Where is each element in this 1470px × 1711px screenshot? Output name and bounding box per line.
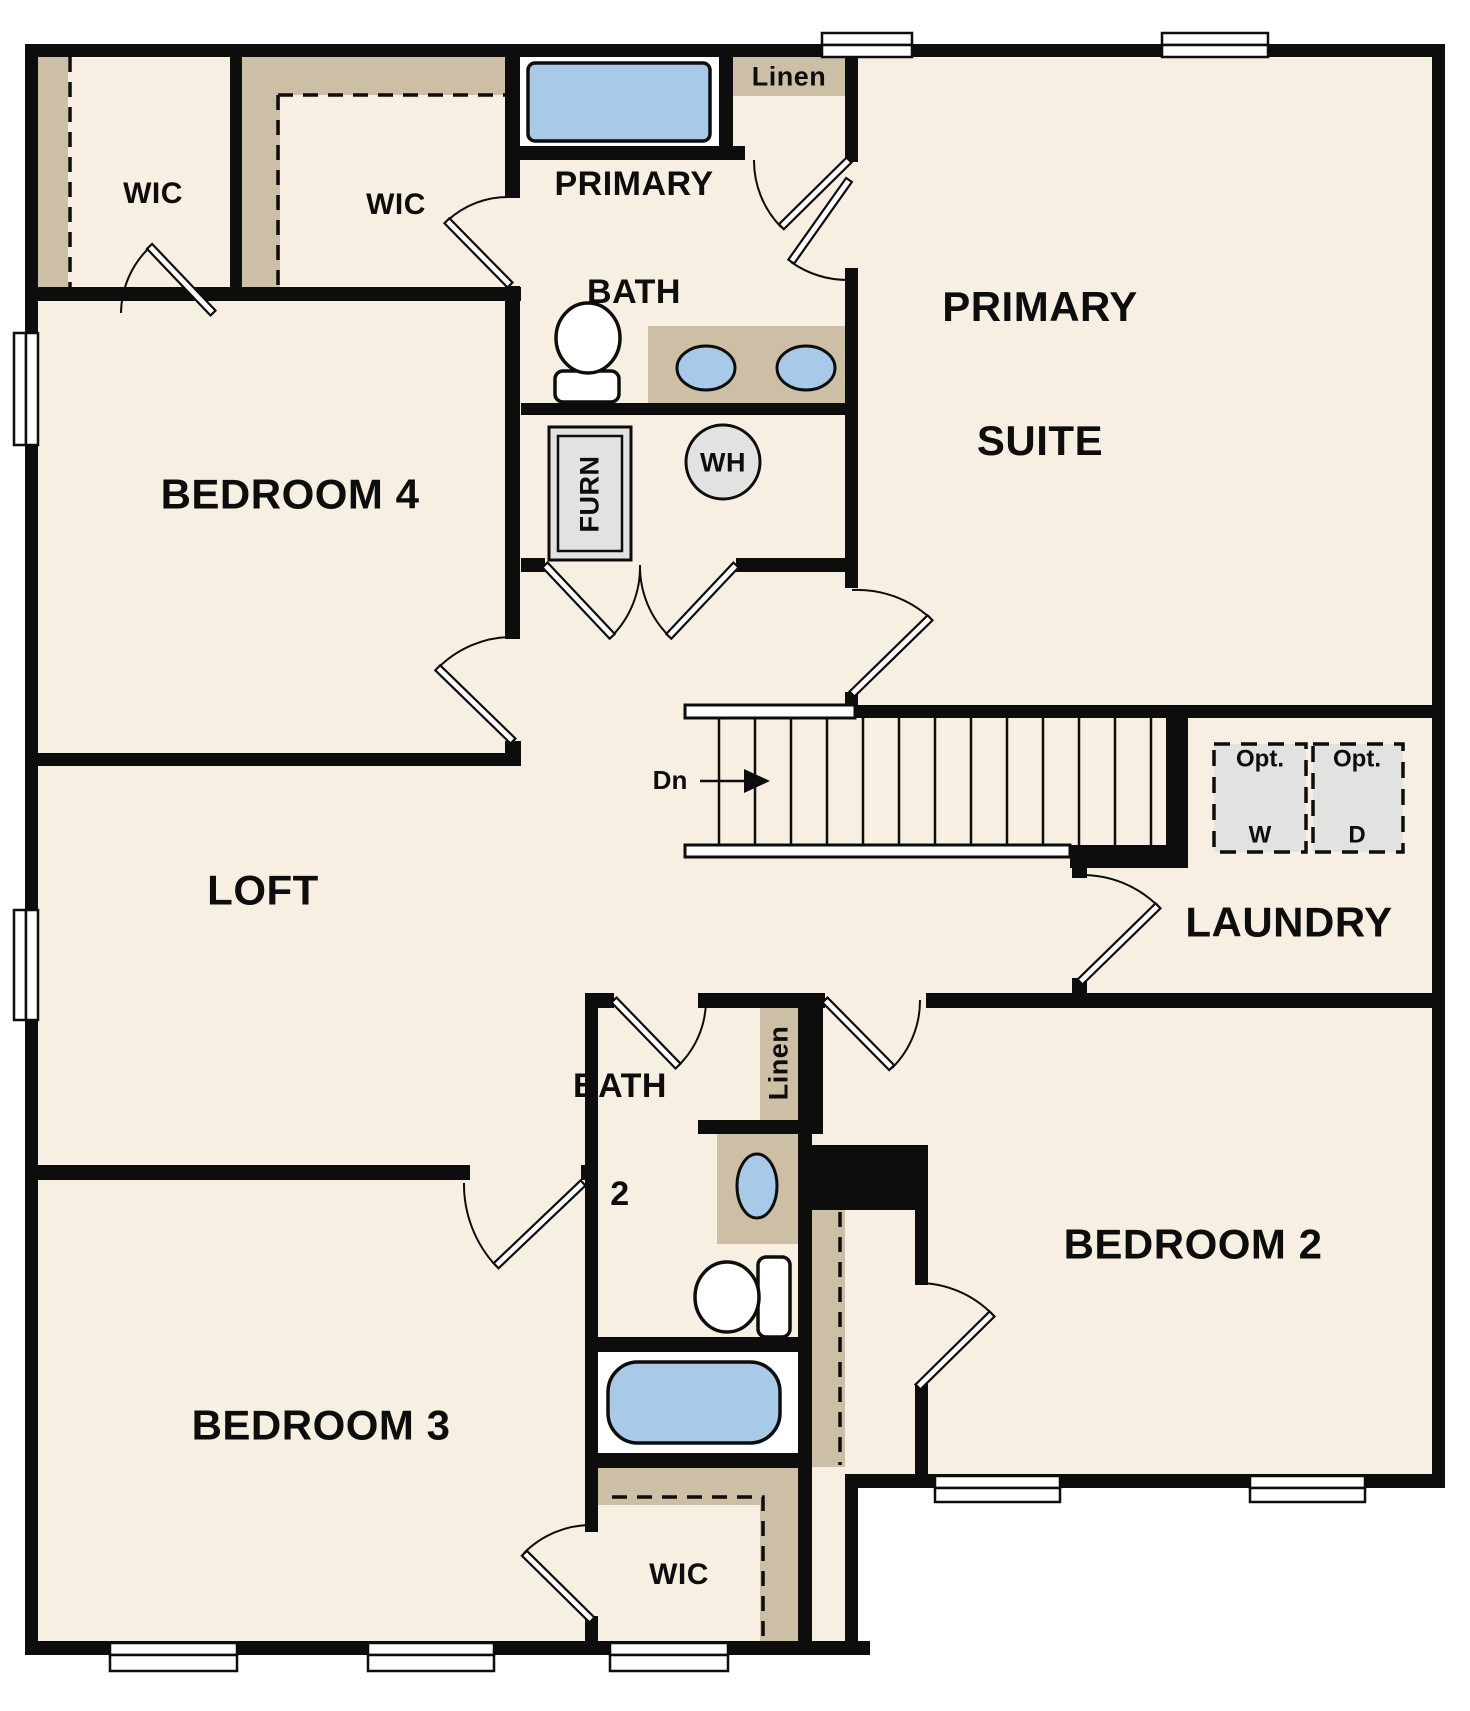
label-stairs-down: Dn — [653, 767, 688, 795]
label-primary-suite: PRIMARY SUITE — [942, 196, 1138, 552]
label-wic-top-left: WIC — [123, 178, 183, 210]
floor-plan: WIC WIC PRIMARY BATH Linen PRIMARY SUITE… — [0, 0, 1470, 1711]
stair-rail-bottom — [685, 845, 1070, 857]
stair-rail-top — [685, 705, 855, 718]
label-wic-bottom: WIC — [649, 1559, 709, 1591]
label-water-heater: WH — [700, 449, 746, 478]
label-opt-washer: Opt. W — [1236, 695, 1284, 899]
label-bath2: BATH 2 — [573, 996, 667, 1284]
label-linen-top: Linen — [752, 63, 827, 92]
vanity-sink-right — [777, 346, 835, 390]
label-opt-dryer: Opt. D — [1333, 695, 1381, 899]
label-laundry: LAUNDRY — [1185, 901, 1392, 946]
label-linen-bath2: Linen — [765, 1026, 794, 1101]
bath2-toilet — [695, 1257, 790, 1337]
label-primary-bath: PRIMARY BATH — [554, 94, 713, 382]
label-furnace: FURN — [576, 456, 605, 533]
label-bedroom2: BEDROOM 2 — [1064, 1223, 1323, 1268]
bath2-sink — [737, 1154, 777, 1218]
label-bedroom4: BEDROOM 4 — [161, 473, 420, 518]
label-loft: LOFT — [207, 869, 319, 914]
bath2-tub — [608, 1362, 780, 1443]
label-bedroom3: BEDROOM 3 — [192, 1404, 451, 1449]
label-wic-top-mid: WIC — [366, 189, 426, 221]
